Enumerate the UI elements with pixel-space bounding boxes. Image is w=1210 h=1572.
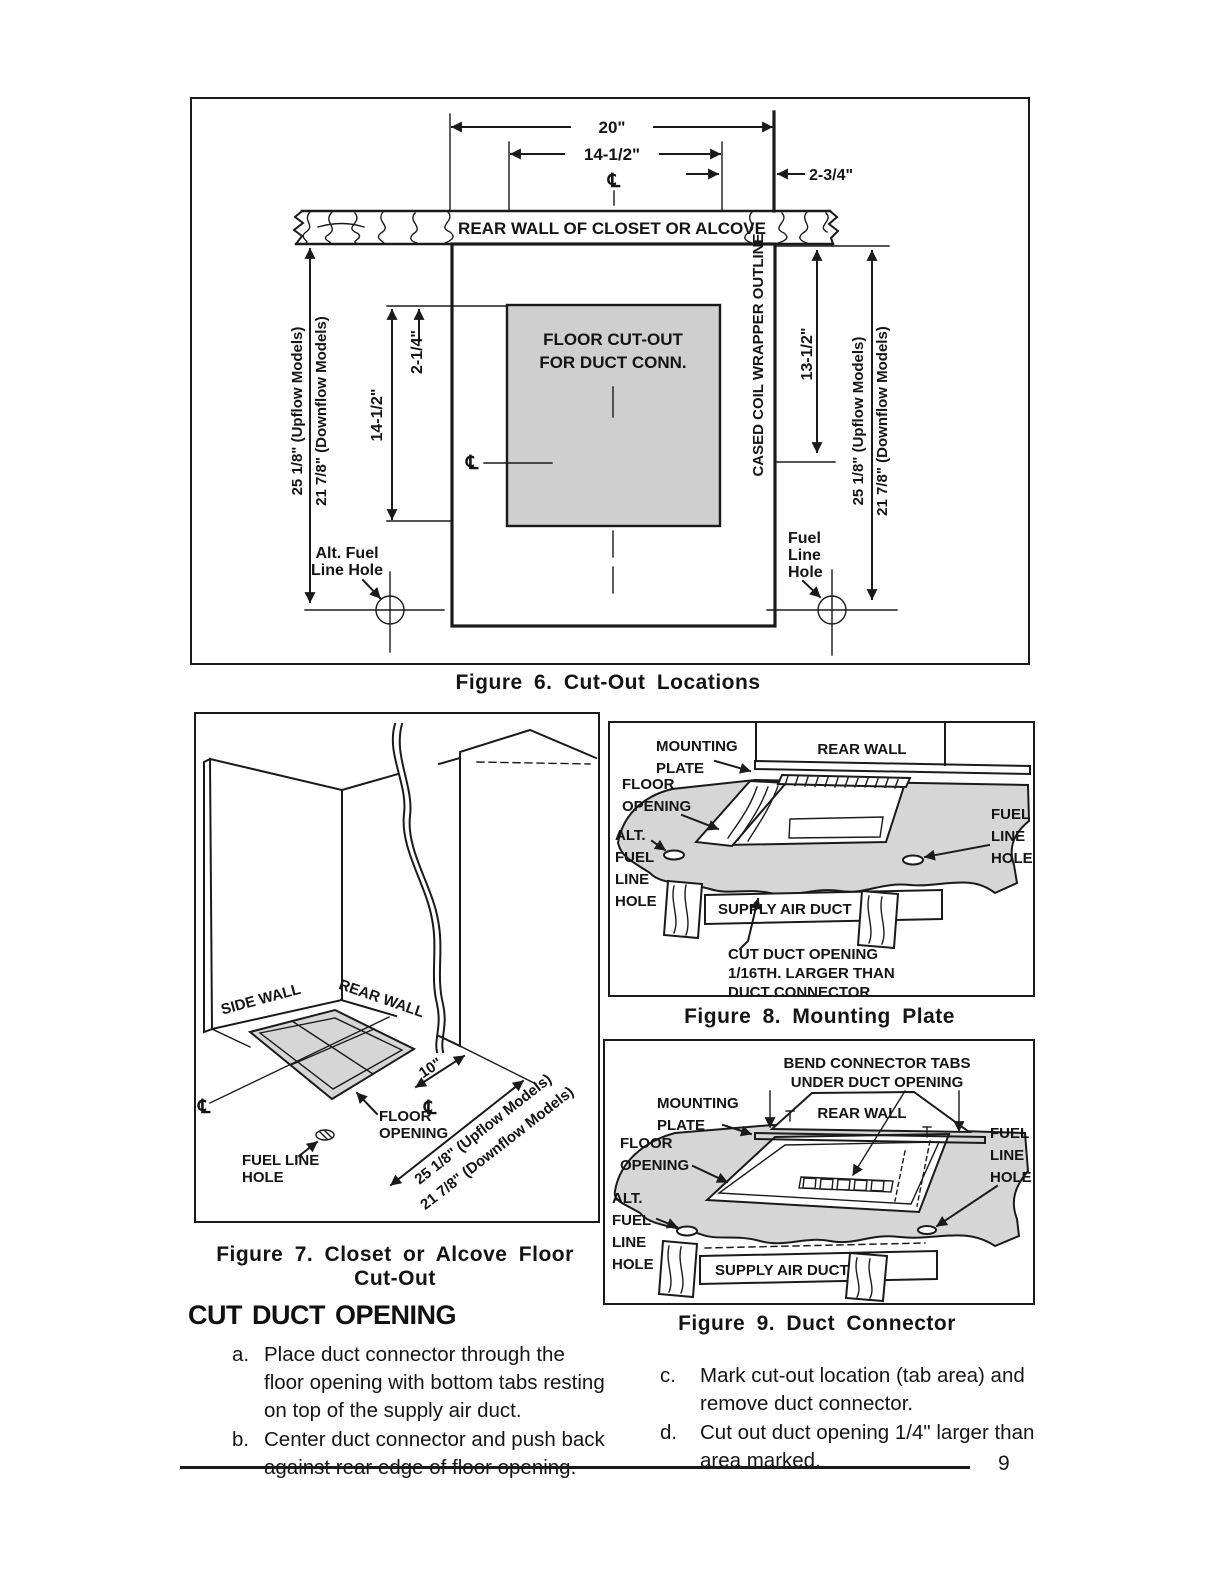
rear-wall-label: REAR WALL xyxy=(817,1105,906,1122)
svg-text:HOLE: HOLE xyxy=(990,1169,1032,1186)
fuel-label-2: Line xyxy=(788,547,821,564)
footer-rule xyxy=(180,1466,970,1469)
fuel-label-3: Hole xyxy=(788,564,823,581)
svg-text:FLOOR: FLOOR xyxy=(622,776,675,793)
alt-fuel-label-1: Alt. Fuel xyxy=(315,545,378,562)
side-wall-label: SIDE WALL xyxy=(219,981,302,1019)
rear-wall-label: REAR WALL xyxy=(337,976,427,1021)
svg-text:MOUNTING: MOUNTING xyxy=(656,738,738,755)
downflow-diagonal: 21 7/8" (Downflow Models) xyxy=(417,1083,577,1213)
diagonal-model-dimension: 25 1/8" (Upflow Models) 21 7/8" (Downflo… xyxy=(391,1071,577,1214)
fuel-label-1: Fuel xyxy=(788,530,821,547)
svg-text:PLATE: PLATE xyxy=(657,1117,705,1134)
left-dimensions: 14-1/2" 2-1/4" xyxy=(369,306,507,521)
page-number: 9 xyxy=(998,1452,1010,1476)
cased-coil-label: CASED COIL WRAPPER OUTLINE xyxy=(750,233,767,476)
svg-text:FLOOR: FLOOR xyxy=(620,1135,673,1152)
wood-grain-left xyxy=(303,212,453,244)
svg-text:FUEL: FUEL xyxy=(615,849,654,866)
svg-text:FUEL: FUEL xyxy=(990,1125,1029,1142)
figure-7-closet-floor-cutout: SIDE WALL REAR WALL ℄ ℄ 10" xyxy=(194,712,600,1223)
figure-6-drawing: REAR WALL OF CLOSET OR ALCOVE 20" 14-1/2… xyxy=(192,99,1028,663)
svg-text:OPENING: OPENING xyxy=(379,1125,448,1142)
cut-duct-opening-heading: CUT DUCT OPENING xyxy=(188,1300,456,1331)
wood-leg-right xyxy=(858,891,898,948)
svg-text:1/16TH. LARGER THAN: 1/16TH. LARGER THAN xyxy=(728,965,895,982)
svg-text:LINE: LINE xyxy=(612,1234,646,1251)
mounting-plate-label: MOUNTING PLATE xyxy=(656,738,750,777)
figure-8-mounting-plate: SUPPLY AIR DUCT xyxy=(608,721,1035,997)
downflow-left: 21 7/8" (Downflow Models) xyxy=(313,316,330,506)
svg-text:FUEL LINE: FUEL LINE xyxy=(242,1152,319,1169)
centerline-symbol-left: ℄ xyxy=(465,453,479,474)
alt-fuel-line-hole: Alt. Fuel Line Hole xyxy=(305,545,444,652)
item-text: Mark cut-out location (tab area) and rem… xyxy=(700,1362,1035,1418)
instruction-list-right: c. Mark cut-out location (tab area) and … xyxy=(660,1362,1035,1476)
svg-text:OPENING: OPENING xyxy=(620,1157,689,1174)
svg-text:LINE: LINE xyxy=(990,1147,1024,1164)
manual-page: REAR WALL OF CLOSET OR ALCOVE 20" 14-1/2… xyxy=(0,0,1210,1572)
dim-13-12: 13-1/2" xyxy=(799,328,816,381)
figure-8-drawing: SUPPLY AIR DUCT xyxy=(610,723,1033,995)
svg-text:FUEL: FUEL xyxy=(612,1212,651,1229)
rear-wall: REAR WALL xyxy=(755,723,1030,788)
svg-text:FLOOR: FLOOR xyxy=(379,1108,432,1125)
figure-6-caption: Figure 6. Cut-Out Locations xyxy=(190,671,1026,695)
right-model-dimension: 25 1/8" (Upflow Models) 21 7/8" (Downflo… xyxy=(850,251,891,599)
dim-14-left: 14-1/2" xyxy=(369,389,386,442)
upflow-right: 25 1/8" (Upflow Models) xyxy=(850,337,867,506)
svg-text:OPENING: OPENING xyxy=(622,798,691,815)
svg-text:LINE: LINE xyxy=(615,871,649,888)
figure-6-cutout-locations: REAR WALL OF CLOSET OR ALCOVE 20" 14-1/2… xyxy=(190,97,1030,665)
dim-14-top: 14-1/2" xyxy=(584,145,640,164)
floor-opening xyxy=(210,1010,414,1103)
svg-text:ALT.: ALT. xyxy=(612,1190,643,1207)
dim-2-14: 2-1/4" xyxy=(409,330,426,374)
svg-text:BEND CONNECTOR TABS: BEND CONNECTOR TABS xyxy=(784,1055,971,1072)
svg-text:DUCT CONNECTOR: DUCT CONNECTOR xyxy=(728,984,870,995)
svg-text:SUPPLY AIR DUCT: SUPPLY AIR DUCT xyxy=(718,901,852,918)
dim-2-34: 2-3/4" xyxy=(809,167,853,184)
centerline-symbol-top: ℄ xyxy=(607,171,621,192)
figure-9-caption: Figure 9. Duct Connector xyxy=(603,1312,1031,1336)
figure-7-drawing: SIDE WALL REAR WALL ℄ ℄ 10" xyxy=(196,714,598,1221)
floor-cutout-area: FLOOR CUT-OUT FOR DUCT CONN. xyxy=(507,305,720,593)
svg-text:MOUNTING: MOUNTING xyxy=(657,1095,739,1112)
top-dimensions: 20" 14-1/2" ℄ 2-3/4" xyxy=(450,112,853,211)
item-text: Place duct connector through the floor o… xyxy=(264,1341,606,1425)
svg-text:FUEL: FUEL xyxy=(991,806,1030,823)
svg-text:SUPPLY AIR DUCT: SUPPLY AIR DUCT xyxy=(715,1262,849,1279)
svg-text:10": 10" xyxy=(416,1055,445,1082)
figure-7-caption: Figure 7. Closet or Alcove Floor Cut-Out xyxy=(194,1243,596,1291)
figure-9-duct-connector: SUPPLY AIR DUCT xyxy=(603,1039,1035,1305)
supply-air-duct: SUPPLY AIR DUCT xyxy=(659,1241,937,1301)
upflow-left: 25 1/8" (Upflow Models) xyxy=(289,327,306,496)
floor-cutout-label-2: FOR DUCT CONN. xyxy=(539,353,686,372)
svg-text:PLATE: PLATE xyxy=(656,760,704,777)
fuel-line-hole: Fuel Line Hole xyxy=(767,530,897,655)
alt-fuel-label-2: Line Hole xyxy=(311,562,383,579)
rear-wall-label: REAR WALL OF CLOSET OR ALCOVE xyxy=(458,219,766,238)
svg-text:ALT.: ALT. xyxy=(615,827,646,844)
list-item-c: c. Mark cut-out location (tab area) and … xyxy=(660,1362,1035,1418)
figure-9-drawing: SUPPLY AIR DUCT xyxy=(605,1041,1033,1303)
svg-text:HOLE: HOLE xyxy=(615,893,657,910)
rear-wall-label: REAR WALL xyxy=(817,741,906,758)
wood-leg-right xyxy=(846,1253,887,1301)
item-letter: a. xyxy=(232,1341,264,1425)
svg-text:CUT DUCT OPENING: CUT DUCT OPENING xyxy=(728,946,878,963)
dim-10: 10" xyxy=(416,1055,464,1087)
list-item-a: a. Place duct connector through the floo… xyxy=(232,1341,606,1425)
figure-8-caption: Figure 8. Mounting Plate xyxy=(608,1005,1031,1029)
floor-cutout-label-1: FLOOR CUT-OUT xyxy=(543,330,683,349)
dim-20: 20" xyxy=(599,118,626,137)
svg-text:HOLE: HOLE xyxy=(991,850,1033,867)
item-text: Center duct connector and push back agai… xyxy=(264,1426,606,1482)
svg-text:LINE: LINE xyxy=(991,828,1025,845)
svg-text:HOLE: HOLE xyxy=(242,1169,284,1186)
svg-text:HOLE: HOLE xyxy=(612,1256,654,1273)
item-letter: b. xyxy=(232,1426,264,1482)
centerline-symbol-left: ℄ xyxy=(197,1097,211,1118)
instruction-list-left: a. Place duct connector through the floo… xyxy=(232,1341,606,1483)
item-letter: c. xyxy=(660,1362,700,1418)
wood-leg-left xyxy=(664,881,702,938)
list-item-b: b. Center duct connector and push back a… xyxy=(232,1426,606,1482)
svg-text:UNDER DUCT OPENING: UNDER DUCT OPENING xyxy=(791,1074,964,1091)
fuel-line-hole: FUEL LINE HOLE xyxy=(242,1130,334,1186)
wood-leg-left xyxy=(659,1241,697,1297)
downflow-right: 21 7/8" (Downflow Models) xyxy=(874,326,891,516)
